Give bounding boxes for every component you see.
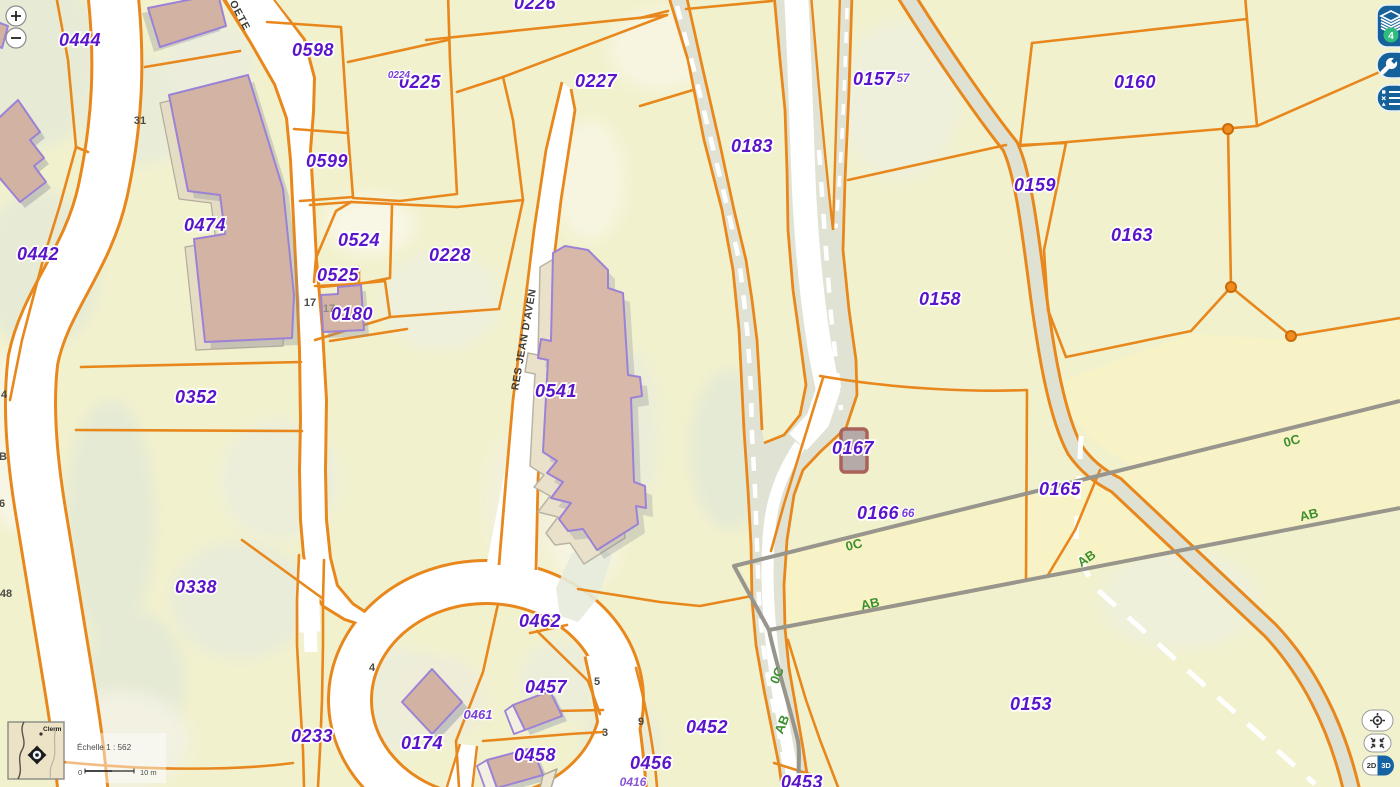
svg-text:9: 9	[638, 716, 644, 728]
svg-text:2D: 2D	[1367, 761, 1377, 770]
svg-text:0456: 0456	[630, 753, 673, 773]
svg-text:0167: 0167	[832, 438, 875, 458]
svg-text:B: B	[0, 451, 7, 463]
svg-text:0227: 0227	[575, 71, 618, 91]
svg-text:0416: 0416	[620, 775, 647, 787]
svg-text:0524: 0524	[338, 230, 380, 250]
svg-text:0226: 0226	[514, 0, 557, 13]
svg-text:0228: 0228	[429, 245, 471, 265]
svg-text:0158: 0158	[919, 289, 961, 309]
svg-text:0: 0	[78, 768, 82, 777]
svg-text:4: 4	[1, 389, 8, 401]
svg-text:31: 31	[134, 115, 146, 127]
svg-text:0233: 0233	[291, 726, 333, 746]
svg-text:0598: 0598	[292, 40, 334, 60]
svg-text:0442: 0442	[17, 244, 59, 264]
svg-text:0180: 0180	[331, 304, 373, 324]
svg-text:0525: 0525	[317, 265, 360, 285]
svg-text:3D: 3D	[1381, 761, 1391, 770]
svg-text:5: 5	[594, 676, 600, 688]
svg-text:0452: 0452	[686, 717, 728, 737]
svg-text:17: 17	[323, 303, 335, 315]
svg-text:0599: 0599	[306, 151, 348, 171]
svg-text:0457: 0457	[525, 677, 568, 697]
svg-text:Échelle 1 : 562: Échelle 1 : 562	[77, 742, 132, 752]
svg-text:3: 3	[602, 727, 608, 739]
svg-text:0458: 0458	[514, 745, 556, 765]
svg-text:4: 4	[1388, 31, 1394, 42]
svg-text:57: 57	[897, 73, 910, 85]
svg-text:0474: 0474	[184, 215, 226, 235]
svg-text:0224: 0224	[388, 70, 411, 81]
svg-text:0157: 0157	[853, 69, 896, 89]
svg-text:4: 4	[369, 662, 376, 674]
svg-text:0453: 0453	[781, 772, 823, 787]
svg-text:48: 48	[0, 588, 12, 600]
svg-text:0166: 0166	[857, 503, 900, 523]
svg-text:0174: 0174	[401, 733, 443, 753]
svg-text:17: 17	[304, 297, 316, 309]
svg-text:0338: 0338	[175, 577, 217, 597]
svg-text:0163: 0163	[1111, 225, 1153, 245]
svg-text:0153: 0153	[1010, 694, 1052, 714]
svg-text:0159: 0159	[1014, 175, 1056, 195]
svg-text:0183: 0183	[731, 136, 773, 156]
svg-text:0541: 0541	[535, 381, 577, 401]
svg-text:6: 6	[0, 498, 5, 510]
svg-text:0352: 0352	[175, 387, 217, 407]
svg-text:66: 66	[902, 508, 915, 520]
svg-text:10 m: 10 m	[140, 768, 157, 777]
svg-text:Clerm: Clerm	[43, 726, 62, 733]
svg-text:0461: 0461	[464, 707, 493, 722]
svg-text:0165: 0165	[1039, 479, 1082, 499]
svg-text:0444: 0444	[59, 30, 101, 50]
svg-text:0462: 0462	[519, 611, 561, 631]
svg-text:0160: 0160	[1114, 72, 1156, 92]
